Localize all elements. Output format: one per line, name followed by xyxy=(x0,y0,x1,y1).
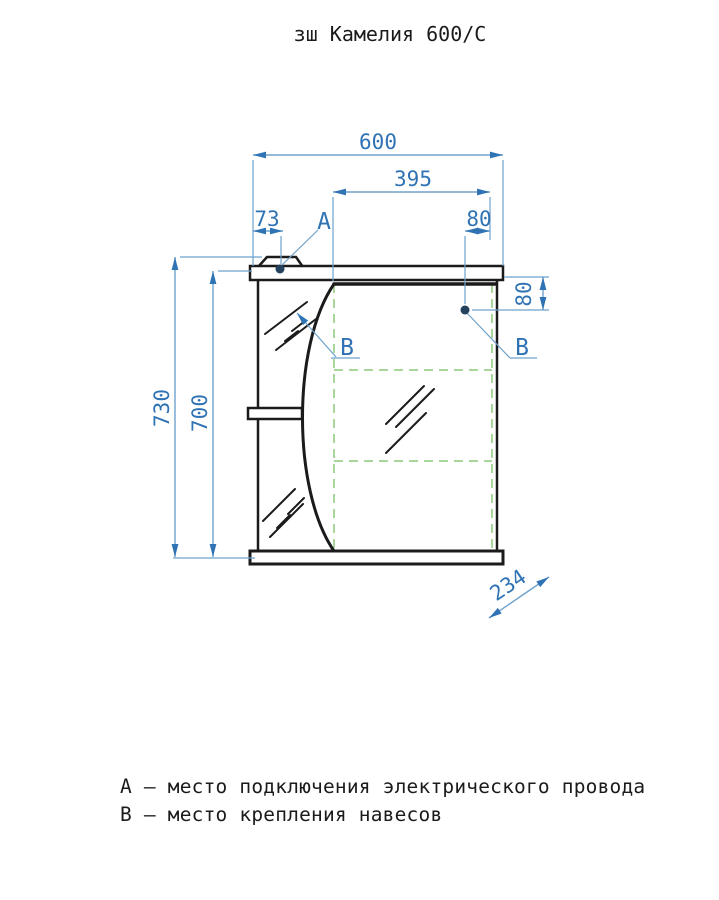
dim-left-offset-value: 73 xyxy=(254,207,279,231)
mirror-hatch-center-icon xyxy=(386,386,434,453)
drawing-title: зш Камелия 600/С xyxy=(294,22,487,46)
point-b-left-label: В xyxy=(340,335,354,361)
point-b-right-marker: В xyxy=(461,306,538,362)
dim-top-right-offset: 80 xyxy=(465,207,492,231)
dim-overall-height: 730 xyxy=(150,257,175,557)
legend-line-a: А – место подключения электрического про… xyxy=(120,775,645,798)
door-dashed-outline xyxy=(334,284,492,551)
point-a-marker: А xyxy=(276,209,332,274)
dim-overall-width-value: 600 xyxy=(359,130,397,154)
dim-body-height: 700 xyxy=(188,271,213,557)
middle-shelf xyxy=(248,408,302,419)
technical-drawing-page: зш Камелия 600/С xyxy=(0,0,719,900)
point-b-right-label: В xyxy=(515,335,529,361)
dim-side-offset-value: 80 xyxy=(512,281,536,306)
dim-door-width: 395 xyxy=(333,167,490,192)
point-b-left-marker: В xyxy=(297,313,360,361)
dim-side-offset: 80 xyxy=(512,277,543,310)
dim-body-height-value: 700 xyxy=(188,394,212,432)
legend-line-b: В – место крепления навесов xyxy=(120,803,442,826)
dim-depth-value: 234 xyxy=(486,565,531,606)
cabinet-drawing: зш Камелия 600/С xyxy=(0,0,719,900)
legend: А – место подключения электрического про… xyxy=(120,775,645,826)
point-b-dot xyxy=(461,306,470,315)
dim-door-width-value: 395 xyxy=(394,167,432,191)
dim-left-offset: 73 xyxy=(253,207,283,231)
dim-depth: 234 xyxy=(486,565,549,618)
dim-top-right-offset-value: 80 xyxy=(466,207,491,231)
dim-overall-width: 600 xyxy=(253,130,503,155)
mirror-hatch-bottom-left-icon xyxy=(263,489,304,537)
dim-overall-height-value: 730 xyxy=(150,389,174,427)
point-a-label: А xyxy=(317,209,331,235)
cabinet-bottom-board xyxy=(250,551,503,564)
point-a-dot xyxy=(276,265,285,274)
